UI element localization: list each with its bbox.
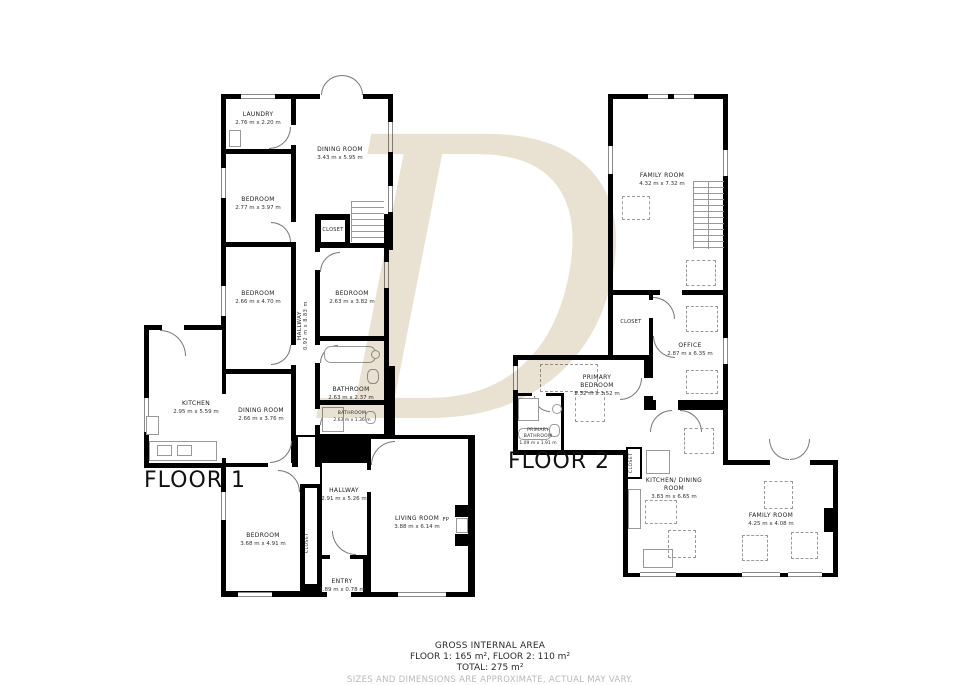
label-entry: ENTRY1.89 m x 0.78 m — [312, 578, 372, 595]
label-primary-bedroom: PRIMARY BEDROOM5.32 m x 3.52 m — [572, 374, 622, 399]
ceiling-hatch — [742, 535, 768, 561]
label-bathroom-small: BATHROOM2.63 m x 1.36 m — [322, 411, 382, 424]
door-opening — [644, 378, 653, 396]
fridge — [646, 450, 670, 474]
ceiling-hatch — [791, 532, 818, 559]
ceiling-hatch — [668, 530, 696, 558]
stair-rail — [708, 181, 709, 249]
floorplan-canvas: LAUNDRY2.76 m x 2.20 m DINING ROOM3.43 m… — [0, 0, 980, 685]
window — [241, 94, 275, 99]
label-primary-bathroom: PRIMARY BATHROOM1.09 m x 1.91 m — [516, 428, 560, 447]
footer-title: GROSS INTERNAL AREA — [0, 641, 980, 651]
label-fireplace: FP — [440, 517, 452, 524]
door-opening — [268, 463, 292, 468]
toilet — [367, 369, 379, 384]
ceiling-hatch — [684, 428, 714, 454]
window — [608, 146, 613, 174]
window — [384, 262, 389, 288]
footer-disclaimer: SIZES AND DIMENSIONS ARE APPROXIMATE, AC… — [0, 675, 980, 685]
window — [513, 366, 518, 390]
hall-connector — [298, 437, 315, 468]
door-opening — [330, 555, 350, 559]
window — [723, 150, 728, 176]
door-opening — [162, 325, 184, 330]
ceiling-hatch — [686, 260, 716, 286]
label-bedroom-bottom: BEDROOM3.68 m x 4.91 m — [233, 532, 293, 549]
label-closet-office: CLOSET — [613, 319, 649, 326]
fireplace-recess — [456, 518, 468, 533]
label-kitchen: KITCHEN2.95 m x 5.59 m — [166, 400, 226, 417]
window — [238, 592, 272, 597]
door-opening — [656, 400, 678, 410]
door-arc — [342, 75, 363, 95]
door-arc — [790, 439, 810, 460]
door-opening — [291, 222, 296, 242]
bathtub — [324, 346, 376, 363]
ceiling-hatch — [645, 500, 677, 524]
window — [221, 168, 226, 198]
floor1-title: FLOOR 1 — [144, 468, 246, 493]
label-laundry: LAUNDRY2.76 m x 2.20 m — [228, 111, 288, 128]
window — [788, 572, 822, 577]
shower — [518, 398, 539, 421]
label-bedroom-top: BEDROOM2.77 m x 3.97 m — [228, 196, 288, 213]
window — [742, 572, 780, 577]
window — [221, 286, 226, 316]
window — [640, 572, 676, 577]
bath-sink — [552, 404, 562, 414]
fireplace-block — [455, 534, 469, 546]
door-opening — [296, 214, 315, 219]
fireplace-block — [824, 508, 838, 532]
door-opening — [291, 345, 296, 365]
bath-sink — [371, 350, 380, 359]
window — [648, 94, 668, 99]
kitchen-shelf — [146, 416, 159, 435]
washer-fixture — [229, 130, 241, 147]
label-hallway-lower: HALLWAY2.91 m x 5.26 m — [314, 487, 374, 504]
fireplace-block — [455, 505, 469, 517]
stairs-floor1 — [351, 201, 384, 242]
window — [674, 94, 694, 99]
label-bedroom-mid: BEDROOM2.66 m x 4.70 m — [228, 290, 288, 307]
door-opening — [660, 290, 682, 295]
label-closet-lower: CLOSET — [305, 515, 317, 570]
door-opening — [315, 252, 320, 270]
kitchen-sink — [177, 445, 192, 456]
ceiling-hatch — [686, 306, 718, 332]
ceiling-hatch — [764, 481, 793, 509]
footer-floor-areas: FLOOR 1: 165 m², FLOOR 2: 110 m² — [0, 652, 980, 662]
kitchen-sink — [157, 445, 172, 456]
label-bathroom-large: BATHROOM2.63 m x 2.37 m — [320, 386, 382, 403]
label-hallway-upper: HALLWAY0.92 m x 8.83 m — [297, 268, 314, 384]
label-office: OFFICE2.87 m x 6.35 m — [655, 342, 725, 359]
ceiling-hatch — [686, 370, 718, 394]
label-dining-top: DINING ROOM3.43 m x 5.95 m — [300, 146, 380, 163]
ceiling-hatch — [622, 196, 650, 220]
label-family-top: FAMILY ROOM4.32 m x 7.32 m — [622, 172, 702, 189]
window — [388, 122, 393, 152]
kitchen-counter — [628, 489, 641, 529]
floor2-title: FLOOR 2 — [508, 449, 610, 474]
door-arc — [769, 439, 789, 460]
bathroom-wall — [561, 393, 564, 450]
footer-total-area: TOTAL: 275 m² — [0, 663, 980, 673]
label-closet-upper: CLOSET — [319, 227, 347, 234]
label-closet-kitchen: CLOSET — [629, 450, 640, 476]
window — [398, 592, 446, 597]
door-arc — [321, 75, 342, 95]
label-family-bottom: FAMILY ROOM4.25 m x 4.08 m — [736, 512, 806, 529]
door-opening — [770, 460, 810, 465]
label-kitchen-dining: KITCHEN/ DINING ROOM3.83 m x 6.65 m — [645, 477, 703, 502]
footer: GROSS INTERNAL AREA FLOOR 1: 165 m², FLO… — [0, 641, 980, 685]
label-dining-mid: DINING ROOM2.66 m x 3.76 m — [230, 407, 292, 424]
window — [221, 492, 226, 520]
door-opening — [291, 125, 296, 145]
window — [388, 186, 393, 212]
door-opening — [300, 467, 320, 484]
label-bedroom-right: BEDROOM2.63 m x 3.82 m — [322, 290, 382, 307]
